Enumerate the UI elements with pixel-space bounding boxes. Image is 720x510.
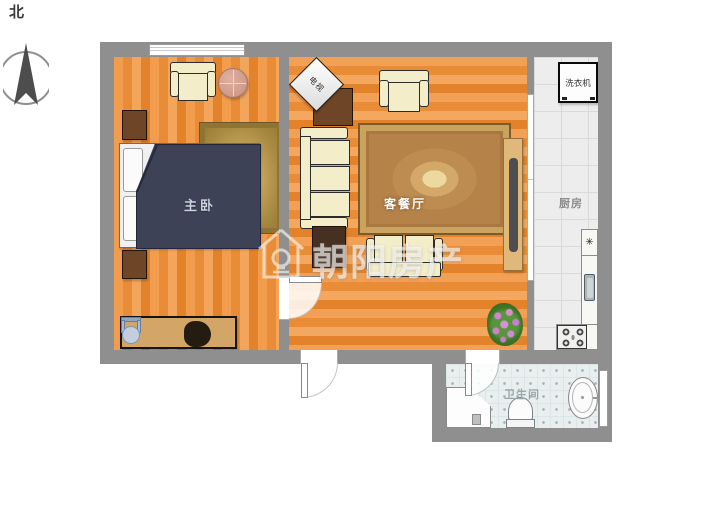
- kitchen-sink: [584, 274, 595, 301]
- sink-basin: [587, 278, 593, 298]
- sofa-three-seat: [300, 127, 352, 229]
- table-line-v: [233, 70, 234, 96]
- compass-north-label: 北: [9, 1, 24, 22]
- entry-door-leaf: [301, 363, 308, 398]
- burner-icon: ✳: [585, 237, 593, 248]
- compass-icon: [3, 40, 49, 110]
- washing-machine-label: 洗衣机: [565, 77, 591, 89]
- counter-burner-box: ✳: [581, 229, 598, 256]
- living-rug: [358, 123, 511, 235]
- bedroom-armchair: [170, 62, 216, 104]
- bedroom-label: 主卧: [168, 195, 232, 214]
- washing-machine: 洗衣机: [558, 62, 598, 103]
- stove: [557, 325, 587, 349]
- chair-seat: [122, 326, 140, 344]
- bedroom-door-frame: [279, 277, 289, 320]
- toilet-tank: [506, 419, 535, 428]
- wall-bottom-right: [500, 350, 612, 364]
- wall-bathroom-bottom: [432, 428, 612, 442]
- sofa-cushion: [310, 166, 350, 191]
- bedroom-window: [149, 44, 245, 56]
- bedroom-round-table: [218, 68, 248, 98]
- living-armchair: [379, 70, 429, 114]
- desk-chair: [121, 317, 142, 348]
- nightstand-top: [122, 110, 147, 140]
- tv-label: 电视: [306, 74, 327, 95]
- sofa-cushion: [310, 192, 350, 217]
- armchair-seat: [388, 82, 420, 112]
- armchair-seat: [178, 73, 208, 101]
- entry-door-frame: [300, 350, 338, 364]
- bathroom-label: 卫生间: [494, 386, 550, 402]
- watermark-logo-icon: [256, 227, 306, 281]
- bathroom-door-frame: [465, 350, 500, 364]
- wall-divider-bedroom-lower: [279, 318, 289, 364]
- wall-bottom-left: [100, 350, 300, 364]
- kitchen-label: 厨房: [548, 195, 594, 211]
- nightstand-bottom: [122, 250, 147, 279]
- kitchen-sliding-door: [527, 94, 534, 281]
- living-label: 客餐厅: [355, 195, 455, 212]
- bathtub-drain: [581, 396, 584, 399]
- sideboard: [503, 138, 523, 271]
- floorplan-canvas: 北 主卧 电视: [0, 0, 720, 510]
- desk-bag: [184, 321, 211, 347]
- armchair-arm-right: [207, 71, 216, 97]
- armchair-arm-right: [419, 80, 429, 107]
- shower-head: [472, 414, 481, 425]
- wall-left: [100, 42, 114, 364]
- plant: [487, 303, 523, 346]
- sideboard-item: [509, 158, 518, 252]
- bathroom-window: [599, 370, 608, 427]
- watermark-text: 朝阳房产: [312, 232, 464, 286]
- wall-divider-kitchen-upper: [527, 57, 534, 94]
- wall-divider-kitchen-lower: [527, 281, 534, 350]
- washing-machine-foot: [590, 97, 595, 100]
- sliding-door-divider: [528, 179, 533, 180]
- washing-machine-foot: [562, 97, 567, 100]
- bathtub: [568, 377, 598, 419]
- sofa-cushion: [310, 140, 350, 165]
- bathroom-door-leaf: [465, 363, 472, 396]
